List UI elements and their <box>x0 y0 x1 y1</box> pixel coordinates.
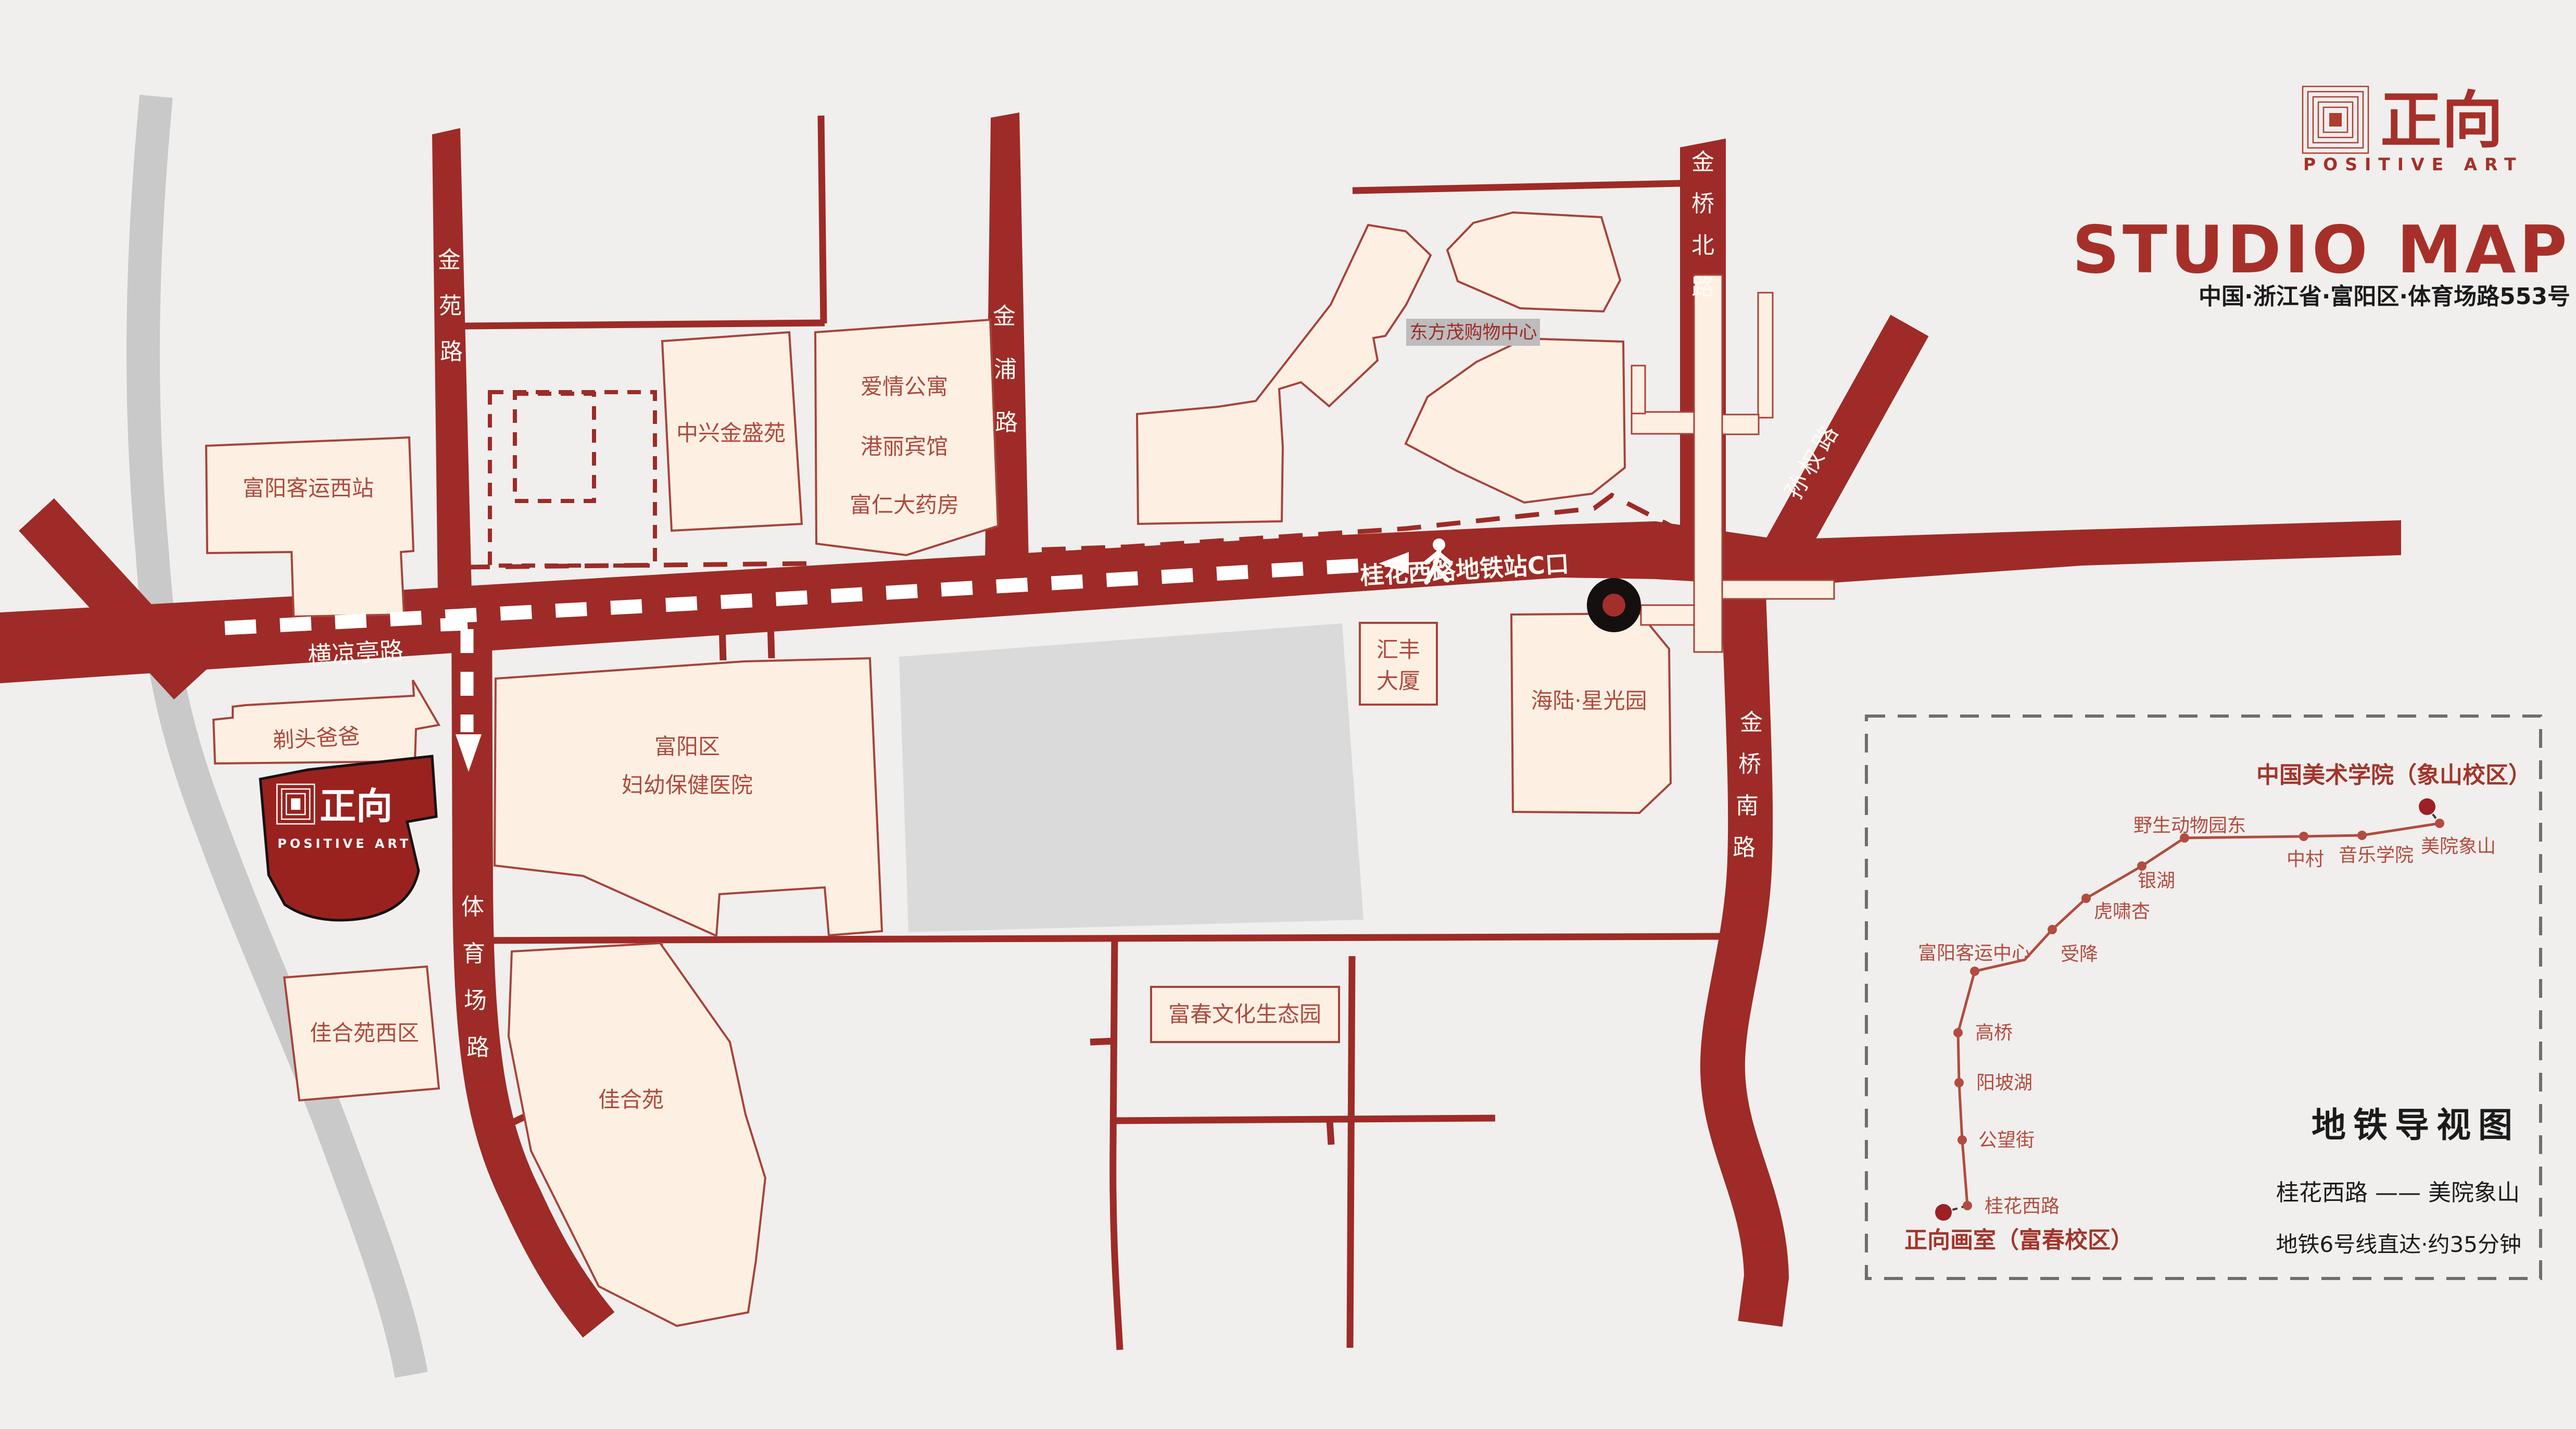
building-label: 汇丰 <box>1377 637 1420 662</box>
station-label: 中村 <box>2287 849 2324 870</box>
road-label-char: 金 <box>1691 149 1714 176</box>
station-label: 野生动物园东 <box>2133 815 2246 836</box>
road-label-char: 浦 <box>994 356 1017 383</box>
building-label: 佳合苑 <box>598 1087 664 1112</box>
road-label-char: 育 <box>462 941 485 967</box>
station-dot <box>1970 967 1979 976</box>
road-jinqiao-south <box>1723 551 1766 1324</box>
station-label: 音乐学院 <box>2339 845 2414 866</box>
station-label: 桂花西路 <box>1985 1196 2060 1217</box>
thin-road <box>1090 1041 1115 1042</box>
road-label-char: 桥 <box>1691 191 1714 217</box>
building-mall-west <box>1137 225 1431 524</box>
thin-road <box>1350 956 1352 1348</box>
road-label-char: 南 <box>1736 793 1759 819</box>
studio-building: 正向 POSITIVE ART <box>260 756 436 920</box>
station-exit-arm <box>1722 415 1759 434</box>
thin-road <box>1330 1120 1331 1145</box>
station-dot <box>2137 861 2146 871</box>
inset-endpoint-academy: 中国美术学院（象山校区） <box>2256 762 2531 788</box>
inset-title: 地铁导视图 <box>2312 1105 2520 1145</box>
brand-name-cn: 正向 <box>2380 84 2503 156</box>
road-label-jinyuan: 金 苑 路 <box>438 247 463 365</box>
station-exit-arm <box>1641 605 1694 625</box>
building-label: 爱情公寓 <box>861 374 948 399</box>
station-label: 富阳客运中心 <box>1918 943 2030 964</box>
road-label-char: 桥 <box>1738 751 1761 778</box>
thin-road <box>1353 183 1682 191</box>
road-label-char: 金 <box>993 303 1016 330</box>
thin-road <box>1113 938 1120 1350</box>
terminal-dot-academy <box>2419 798 2435 815</box>
studio-logo-cn: 正向 <box>320 785 393 828</box>
gray-plaza-block <box>899 623 1363 932</box>
station-dot <box>2357 831 2367 840</box>
station-label: 受降 <box>2061 944 2098 965</box>
inset-endpoint-studio: 正向画室（富春校区） <box>1904 1227 2133 1253</box>
building-label: 海陆·星光园 <box>1531 688 1647 713</box>
station-label: 阳坡湖 <box>1976 1072 2032 1094</box>
station-dot <box>2048 925 2057 934</box>
building-label: 富阳客运西站 <box>243 475 374 501</box>
road-label-char: 金 <box>1740 709 1763 736</box>
road-label-char: 北 <box>1691 232 1714 259</box>
building-label: 东方茂购物中心 <box>1409 322 1537 343</box>
station-concourse <box>1694 275 1722 652</box>
building-mall-south <box>1406 339 1625 503</box>
station-dot <box>2299 832 2308 841</box>
building-label: 佳合苑西区 <box>310 1020 419 1046</box>
road-label-char: 路 <box>1733 834 1756 861</box>
metro-inset: 桂花西路 公望街 阳坡湖 高桥 富阳客运中心 受降 虎啸杏 银湖 野生动物园东 … <box>1866 716 2541 1278</box>
studio-map-poster: 富阳客运西站 中兴金盛苑 爱情公寓 港丽宾馆 富仁大药房 东方茂购物中心 汇丰 … <box>0 0 2576 1429</box>
station-dot <box>2435 819 2444 828</box>
building-label: 富仁大药房 <box>850 492 959 518</box>
station-dot <box>1958 1135 1967 1145</box>
road-label-char: 体 <box>461 894 484 920</box>
station-label: 公望街 <box>1978 1130 2035 1151</box>
station-dot <box>1953 1028 1963 1037</box>
thin-road <box>821 116 824 323</box>
road-label-char: 路 <box>440 339 463 365</box>
station-dot <box>1954 1078 1964 1087</box>
building-titou-banner <box>213 680 439 763</box>
station-exit-arm <box>1722 580 1834 599</box>
brand-name-en: POSITIVE ART <box>2303 154 2523 174</box>
brand-logo-icon <box>2303 86 2368 153</box>
station-exit-arm <box>1632 412 1694 434</box>
thin-road <box>1115 1118 1495 1121</box>
thin-road <box>464 323 825 326</box>
road-label-char: 路 <box>1691 274 1714 300</box>
thin-road <box>722 606 723 660</box>
map-canvas: 富阳客运西站 中兴金盛苑 爱情公寓 港丽宾馆 富仁大药房 东方茂购物中心 汇丰 … <box>0 0 2576 1429</box>
building-label: 富阳区 <box>654 734 720 759</box>
station-label: 虎啸杏 <box>2094 901 2150 922</box>
station-dot <box>2081 894 2091 903</box>
station-label: 美院象山 <box>2421 836 2496 857</box>
station-exit-arm <box>1632 366 1645 413</box>
terminal-dot-studio <box>1935 1204 1952 1221</box>
road-label-hengliangting: 横凉亭路 <box>307 636 405 670</box>
road-label-char: 苑 <box>439 293 462 319</box>
studio-address: 中国·浙江省·富阳区·体育场路553号 <box>2199 283 2570 310</box>
metro-entrance-dot-inner <box>1602 594 1625 617</box>
building-mall-north <box>1447 212 1620 311</box>
station-label: 高桥 <box>1975 1022 2013 1044</box>
dashed-block-inner <box>515 394 594 501</box>
station-label: 银湖 <box>2138 870 2175 892</box>
station-exit-arm <box>1758 293 1773 418</box>
station-dot <box>1963 1201 1972 1210</box>
inset-note: 地铁6号线直达·约35分钟 <box>2276 1232 2521 1257</box>
walking-route-elbow <box>440 624 468 625</box>
header-block: 正向 POSITIVE ART STUDIO MAP 中国·浙江省·富阳区·体育… <box>2072 84 2570 310</box>
road-label-char: 金 <box>438 247 461 273</box>
building-fuyang-west-station <box>206 437 413 617</box>
road-label-char: 路 <box>995 409 1018 436</box>
building-label: 中兴金盛苑 <box>676 420 786 446</box>
thin-road <box>770 604 772 658</box>
building-label: 富春文化生态园 <box>1168 1001 1321 1027</box>
road-label-jinpu: 金 浦 路 <box>993 303 1018 436</box>
studio-logo-en: POSITIVE ART <box>277 836 411 851</box>
inset-route: 桂花西路 —— 美院象山 <box>2276 1180 2520 1206</box>
thin-road <box>465 936 1723 941</box>
building-label: 剃头爸爸 <box>272 723 360 754</box>
page-title: STUDIO MAP <box>2072 211 2570 288</box>
building-label: 大厦 <box>1377 668 1420 694</box>
building-label: 港丽宾馆 <box>861 434 948 459</box>
road-label-char: 路 <box>466 1034 489 1061</box>
building-label: 妇幼保健医院 <box>622 772 753 798</box>
road-jinyuan <box>432 128 473 637</box>
road-label-char: 场 <box>464 987 487 1014</box>
